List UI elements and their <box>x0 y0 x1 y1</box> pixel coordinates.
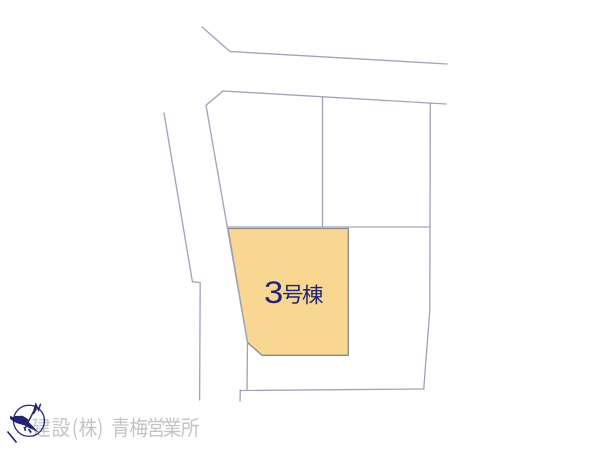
svg-text:3: 3 <box>264 275 283 310</box>
